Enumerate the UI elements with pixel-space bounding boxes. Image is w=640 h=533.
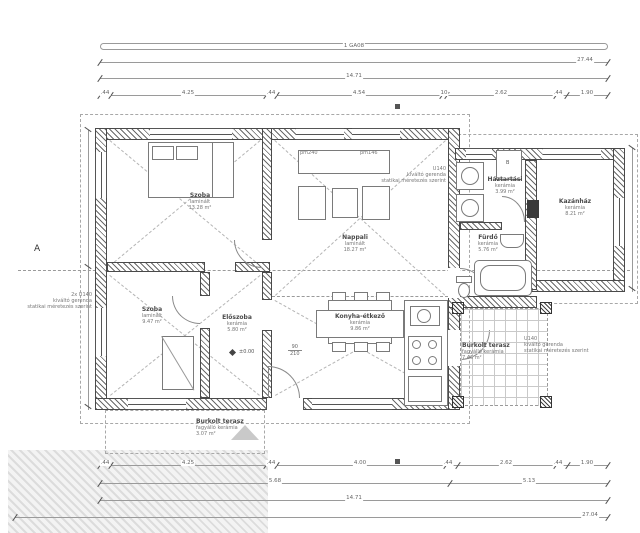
dim-bottom-mid: 14.71 — [345, 495, 363, 501]
dim-bottom-chain-7: 1.90 — [580, 460, 594, 466]
room-area: 8.21 m² — [540, 211, 610, 217]
room-label-furdo: Fürdő kerámia 5.76 m² — [456, 234, 520, 253]
annotation-terasz-beam: U140 kiváltó gerenda statikai méretezés … — [524, 336, 602, 354]
room-area: 5.76 m² — [456, 247, 520, 253]
dim-top-chain-3: 4.54 — [352, 90, 366, 96]
room-area: 5.80 m² — [202, 327, 272, 333]
stove-burner — [428, 340, 437, 349]
room-name: Háztartási — [470, 176, 540, 183]
room-area: 9.86 m² — [317, 326, 403, 332]
ridge-beam-label: 1 GA08 — [343, 43, 365, 49]
dim-bottom-chain-0: .44 — [100, 460, 111, 466]
window-szoba1-left — [95, 152, 107, 198]
room-name: Nappali — [320, 234, 390, 241]
dim-tick — [605, 75, 610, 82]
armchair — [362, 186, 390, 220]
room-label-terasz-also: Burkolt terasz fagyálló kerámia 3.07 m² — [196, 418, 256, 437]
coffee-table — [332, 188, 358, 218]
room-area: 9.47 m² — [117, 319, 187, 325]
dim-tick — [605, 59, 610, 66]
armchair — [298, 186, 326, 220]
wall-szoba1-nappali — [262, 128, 272, 240]
door-size-label: 90 210 — [288, 344, 302, 357]
window-kazanhaz-right — [613, 198, 625, 246]
dim-tick — [605, 480, 610, 487]
dim-bottom-chain-2: .44 — [266, 460, 277, 466]
room-label-terasz-jobb: Burkolt terasz fagyálló kerámia 7.46 m² — [462, 342, 522, 361]
dim-line-left-vertical — [88, 130, 89, 410]
chimney-block — [527, 200, 539, 218]
floor-plan-drawing: 1 GA08 27.44 14.71 .44 4.25 .44 4.54 10 … — [0, 0, 640, 533]
dim-top-total: 27.44 — [576, 57, 594, 63]
lintel-label-pm-left: pm240 — [300, 150, 318, 156]
dim-bottom-chain-4: .44 — [443, 460, 454, 466]
room-label-haztartasi: Háztartási kerámia 3.99 m² — [470, 176, 540, 195]
terrace-column — [452, 396, 464, 408]
toilet-bowl — [458, 283, 470, 298]
fridge — [408, 376, 442, 402]
dim-top-chain-2: .44 — [266, 90, 277, 96]
terasz-door-opening — [448, 330, 460, 366]
dim-tick — [605, 462, 610, 469]
door-height: 210 — [288, 351, 302, 357]
stove-burner — [428, 356, 437, 365]
annotation-left-beam: 2x U140 kiváltó gerenda statikai méretez… — [20, 292, 92, 310]
room-name: Konyha-étkező — [317, 313, 403, 320]
wall-haztartasi-furdo — [460, 222, 502, 230]
dim-line-bottom-total — [15, 517, 608, 518]
room-name: Szoba — [165, 192, 235, 199]
annotation-line: statikai méretezés szerint — [366, 178, 446, 184]
annotation-mid-beam: U140 kiváltó gerenda statikai méretezés … — [366, 166, 446, 184]
room-label-nappali: Nappali laminált 18.27 m² — [320, 234, 390, 253]
dim-top-mid: 14.71 — [345, 73, 363, 79]
window-szoba2-bottom — [128, 398, 186, 410]
dim-bottom-chain-5: 2.62 — [499, 460, 513, 466]
dim-bottom-chain-3: 4.00 — [353, 460, 367, 466]
dim-top-chain-1: 4.25 — [181, 90, 195, 96]
room-area: 3.99 m² — [470, 189, 540, 195]
axis-marker-top — [395, 104, 400, 109]
dryer-drum — [461, 199, 479, 217]
dim-line-right-vertical — [632, 148, 633, 292]
wall-szoba2-eloszoba-a — [200, 272, 210, 296]
room-name: Kazánház — [540, 198, 610, 205]
room-area: 13.28 m² — [165, 205, 235, 211]
section-marker: A — [34, 246, 40, 252]
dim-bottom-chain-6: .44 — [553, 460, 564, 466]
room-label-szoba1: Szoba laminált 13.28 m² — [165, 192, 235, 211]
axis-marker-bottom — [395, 459, 400, 464]
wall-eloszoba-konyha-a — [262, 272, 272, 300]
wall-szoba2-eloszoba-b — [200, 328, 210, 398]
room-name: Szoba — [117, 306, 187, 313]
boiler-label: B — [506, 160, 509, 166]
chair — [354, 342, 368, 352]
wall-mid-a — [107, 262, 205, 272]
terrace-column — [452, 302, 464, 314]
room-name: Fürdő — [456, 234, 520, 241]
dim-top-chain-6: .44 — [553, 90, 564, 96]
room-label-eloszoba: Előszoba kerámia 5.80 m² — [202, 314, 272, 333]
dim-tick — [605, 92, 610, 99]
level-marker-label: ±0.00 — [239, 349, 254, 355]
room-label-kazanhaz: Kazánház kerámia 8.21 m² — [540, 198, 610, 217]
dim-bottom-total: 27.04 — [581, 512, 599, 518]
room-label-szoba2: Szoba laminált 9.47 m² — [117, 306, 187, 325]
terrace-column — [540, 302, 552, 314]
room-area: 7.46 m² — [462, 355, 522, 361]
stove-burner — [412, 356, 421, 365]
dim-top-chain-0: .44 — [100, 90, 111, 96]
room-label-konyha: Konyha-étkező kerámia 9.86 m² — [316, 310, 404, 338]
annotation-line: statikai méretezés szerint — [524, 348, 602, 354]
window-nappali-left — [296, 128, 344, 140]
pillow — [176, 146, 198, 160]
dim-top-chain-7: 1.90 — [580, 90, 594, 96]
room-name: Burkolt terasz — [196, 418, 256, 425]
terrace-column — [540, 396, 552, 408]
stove-burner — [412, 340, 421, 349]
room-area: 3.07 m² — [196, 431, 256, 437]
sink-basin — [417, 309, 431, 323]
pillow — [152, 146, 174, 160]
window-szoba1-top — [150, 128, 232, 140]
bathtub-inner — [480, 265, 526, 291]
window-szoba2-left — [95, 308, 107, 356]
window-kazanhaz-top — [543, 148, 601, 160]
wall-kazanhaz-bottom — [525, 280, 625, 292]
dim-line-top-total — [100, 62, 608, 63]
room-area: 18.27 m² — [320, 247, 390, 253]
window-konyha-bottom — [312, 398, 392, 410]
toilet-tank — [456, 276, 472, 283]
dim-tick — [605, 514, 610, 521]
window-nappali-right — [352, 128, 400, 140]
chair — [332, 342, 346, 352]
dim-top-chain-5: 2.62 — [494, 90, 508, 96]
room-name: Burkolt terasz — [462, 342, 522, 349]
annotation-line: statikai méretezés szerint — [20, 304, 92, 310]
dim-tick — [605, 497, 610, 504]
bed-blanket-line — [212, 142, 213, 198]
lintel-label-pm-right: pm146 — [360, 150, 378, 156]
window-haztartasi-top — [466, 148, 492, 160]
chair — [376, 342, 390, 352]
door-width: 90 — [288, 344, 302, 351]
entrance-opening — [266, 398, 304, 410]
room-name: Előszoba — [202, 314, 272, 321]
dim-bottom-sub-right: 5.13 — [522, 478, 536, 484]
dim-bottom-sub-left: 5.68 — [268, 478, 282, 484]
dim-bottom-chain-1: 4.25 — [181, 460, 195, 466]
dim-top-chain-4: 10 — [440, 90, 449, 96]
ground-hatch-area — [8, 450, 268, 533]
